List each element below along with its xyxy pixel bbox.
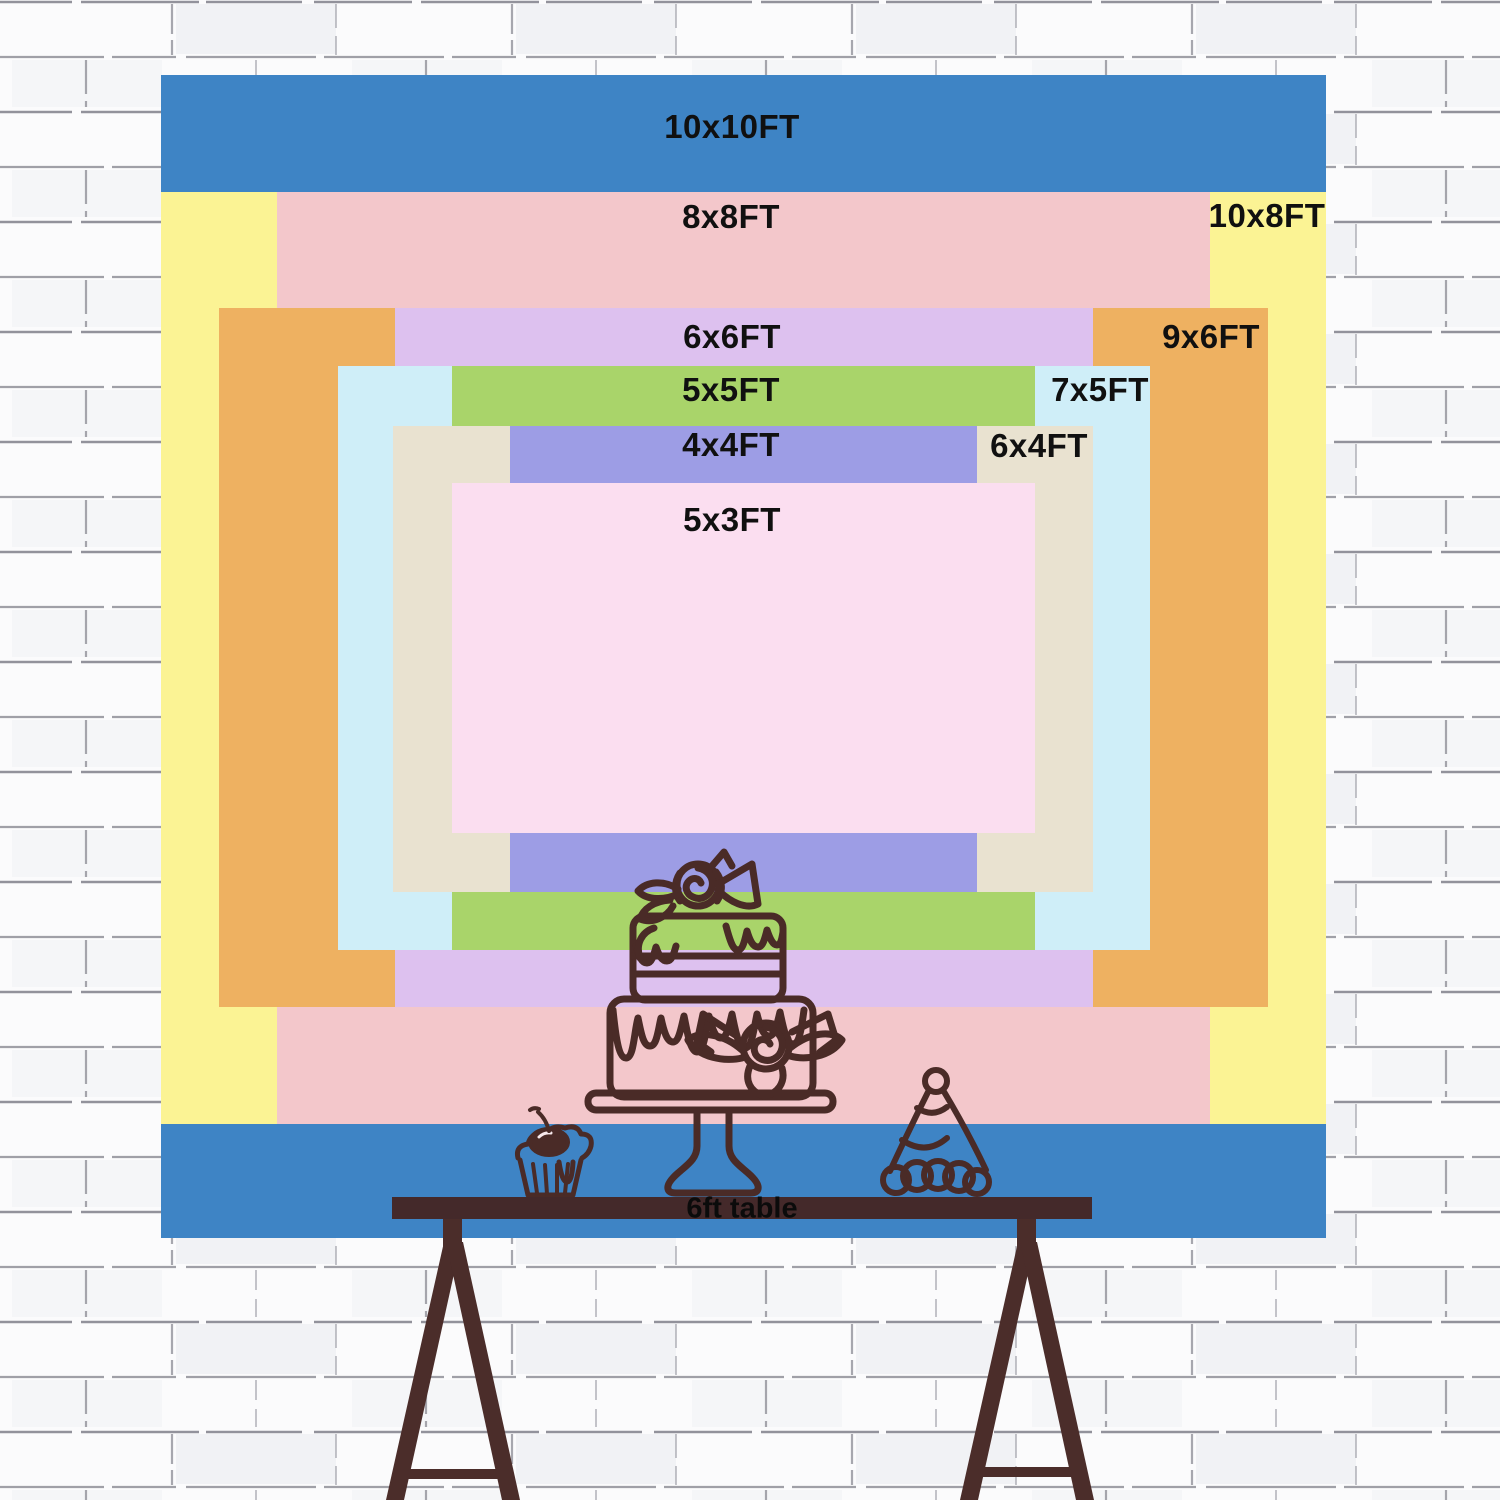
easel-right-trestle xyxy=(960,1214,1094,1500)
table-size-label: 6ft table xyxy=(686,1193,797,1226)
illustration-layer xyxy=(0,0,1500,1500)
tiered-cake-drawing xyxy=(588,852,842,1193)
cupcake-drawing xyxy=(517,1108,591,1195)
backdrop-size-chart: 10x10FT 10x8FT 8x8FT 9x6FT 6x6FT 7x5FT 5… xyxy=(0,0,1500,1500)
party-hat-drawing xyxy=(883,1070,989,1194)
easel-left-trestle xyxy=(386,1214,520,1500)
